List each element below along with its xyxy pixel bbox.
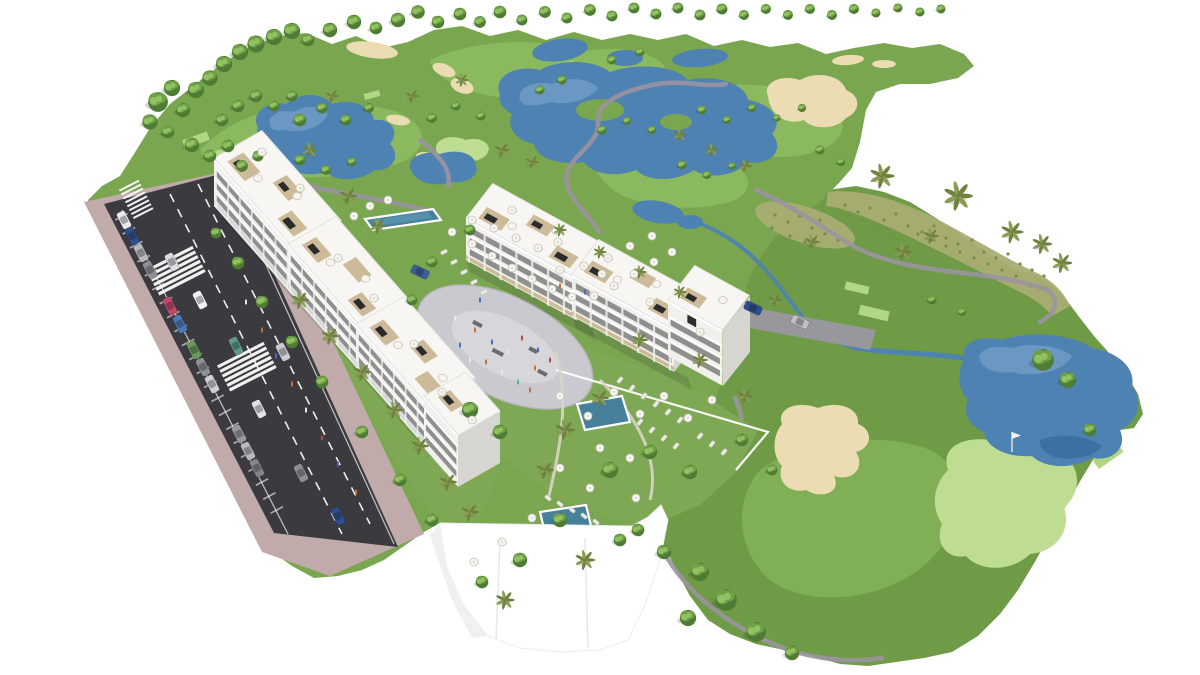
- tree-icon: [161, 80, 180, 96]
- tree-icon: [320, 23, 337, 37]
- person: [485, 359, 487, 364]
- tree-icon: [409, 5, 425, 19]
- scrub-tuft: [847, 214, 850, 217]
- person: [459, 342, 461, 347]
- tree-icon: [892, 4, 903, 13]
- palm-tree-icon: [944, 181, 973, 211]
- scrub-tuft: [843, 203, 846, 206]
- person: [479, 297, 481, 302]
- lake: [410, 152, 477, 185]
- tree-icon: [825, 10, 837, 20]
- scrub-tuft: [868, 206, 871, 209]
- scrub-tuft: [1030, 268, 1033, 271]
- person: [537, 347, 539, 352]
- person: [529, 387, 531, 392]
- person: [559, 283, 561, 288]
- person: [507, 349, 509, 354]
- aerial-site-render: [0, 0, 1200, 675]
- scrub-tuft: [970, 238, 973, 241]
- tree-icon: [344, 15, 361, 29]
- tree-icon: [452, 8, 467, 21]
- scrub-tuft: [823, 232, 826, 235]
- tree-icon: [693, 10, 706, 21]
- palm-tree-icon: [1032, 234, 1052, 255]
- person: [521, 335, 523, 340]
- scrub-tuft: [994, 256, 997, 259]
- scrub-tuft: [888, 232, 891, 235]
- scrub-tuft: [956, 242, 959, 245]
- tree-icon: [870, 9, 881, 18]
- tree-icon: [140, 114, 158, 129]
- palm-tree-icon: [1052, 253, 1072, 274]
- person: [291, 381, 293, 386]
- scrub-tuft: [810, 226, 813, 229]
- tree-icon: [649, 9, 662, 20]
- person: [337, 461, 339, 466]
- person: [245, 299, 247, 304]
- person: [534, 365, 536, 370]
- tree-icon: [627, 3, 640, 14]
- scrub-tuft: [986, 262, 989, 265]
- scrub-tuft: [972, 256, 975, 259]
- scrub-tuft: [1042, 274, 1045, 277]
- scrub-tuft: [770, 226, 773, 229]
- tree-icon: [803, 4, 815, 14]
- tree-icon: [847, 4, 859, 14]
- scrub-tuft: [1018, 262, 1021, 265]
- scrub-tuft: [1000, 268, 1003, 271]
- scrub-tuft: [906, 224, 909, 227]
- tree-icon: [368, 22, 383, 35]
- person: [517, 379, 519, 384]
- tree-icon: [737, 10, 749, 20]
- scrub-tuft: [803, 240, 806, 243]
- palm-tree-icon: [1001, 220, 1024, 243]
- person: [261, 327, 263, 332]
- tree-icon: [492, 6, 507, 19]
- scrub-tuft: [916, 232, 919, 235]
- tree-icon: [671, 3, 684, 14]
- person: [584, 289, 586, 294]
- scrub-tuft: [1014, 274, 1017, 277]
- scrub-tuft: [788, 234, 791, 237]
- person: [355, 489, 357, 494]
- scrub-tuft: [944, 236, 947, 239]
- person: [491, 339, 493, 344]
- tree-icon: [677, 610, 696, 626]
- tree-icon: [430, 16, 445, 29]
- tree-icon: [781, 10, 793, 20]
- person: [321, 435, 323, 440]
- scrub-tuft: [982, 250, 985, 253]
- scrub-tuft: [944, 244, 947, 247]
- scrub-tuft: [773, 213, 776, 216]
- tree-icon: [715, 4, 728, 15]
- tree-icon: [388, 13, 405, 27]
- tree-icon: [515, 15, 528, 26]
- scrub-tuft: [818, 218, 821, 221]
- person: [549, 357, 551, 362]
- scrub-tuft: [1006, 252, 1009, 255]
- scrub-tuft: [882, 218, 885, 221]
- person: [501, 369, 503, 374]
- tree-icon: [145, 92, 168, 112]
- scrub-tuft: [860, 218, 863, 221]
- scrub-tuft: [786, 220, 789, 223]
- person: [469, 357, 471, 362]
- scrub-tuft: [856, 210, 859, 213]
- person: [305, 407, 307, 412]
- person: [454, 315, 456, 320]
- tree-icon: [759, 4, 771, 14]
- tree-icon: [605, 11, 618, 22]
- scrub-tuft: [932, 224, 935, 227]
- scrub-tuft: [958, 250, 961, 253]
- tree-icon: [914, 8, 925, 17]
- palm-tree-icon: [870, 163, 895, 189]
- scrub-tuft: [873, 226, 876, 229]
- tree-icon: [472, 16, 486, 28]
- person: [474, 327, 476, 332]
- tree-icon: [935, 5, 946, 14]
- tree-icon: [582, 4, 596, 16]
- scrub-tuft: [894, 212, 897, 215]
- scrub-tuft: [920, 230, 923, 233]
- person: [275, 353, 277, 358]
- tree-icon: [560, 13, 573, 24]
- screenshot-stage: [0, 0, 1200, 675]
- tree-icon: [537, 6, 551, 18]
